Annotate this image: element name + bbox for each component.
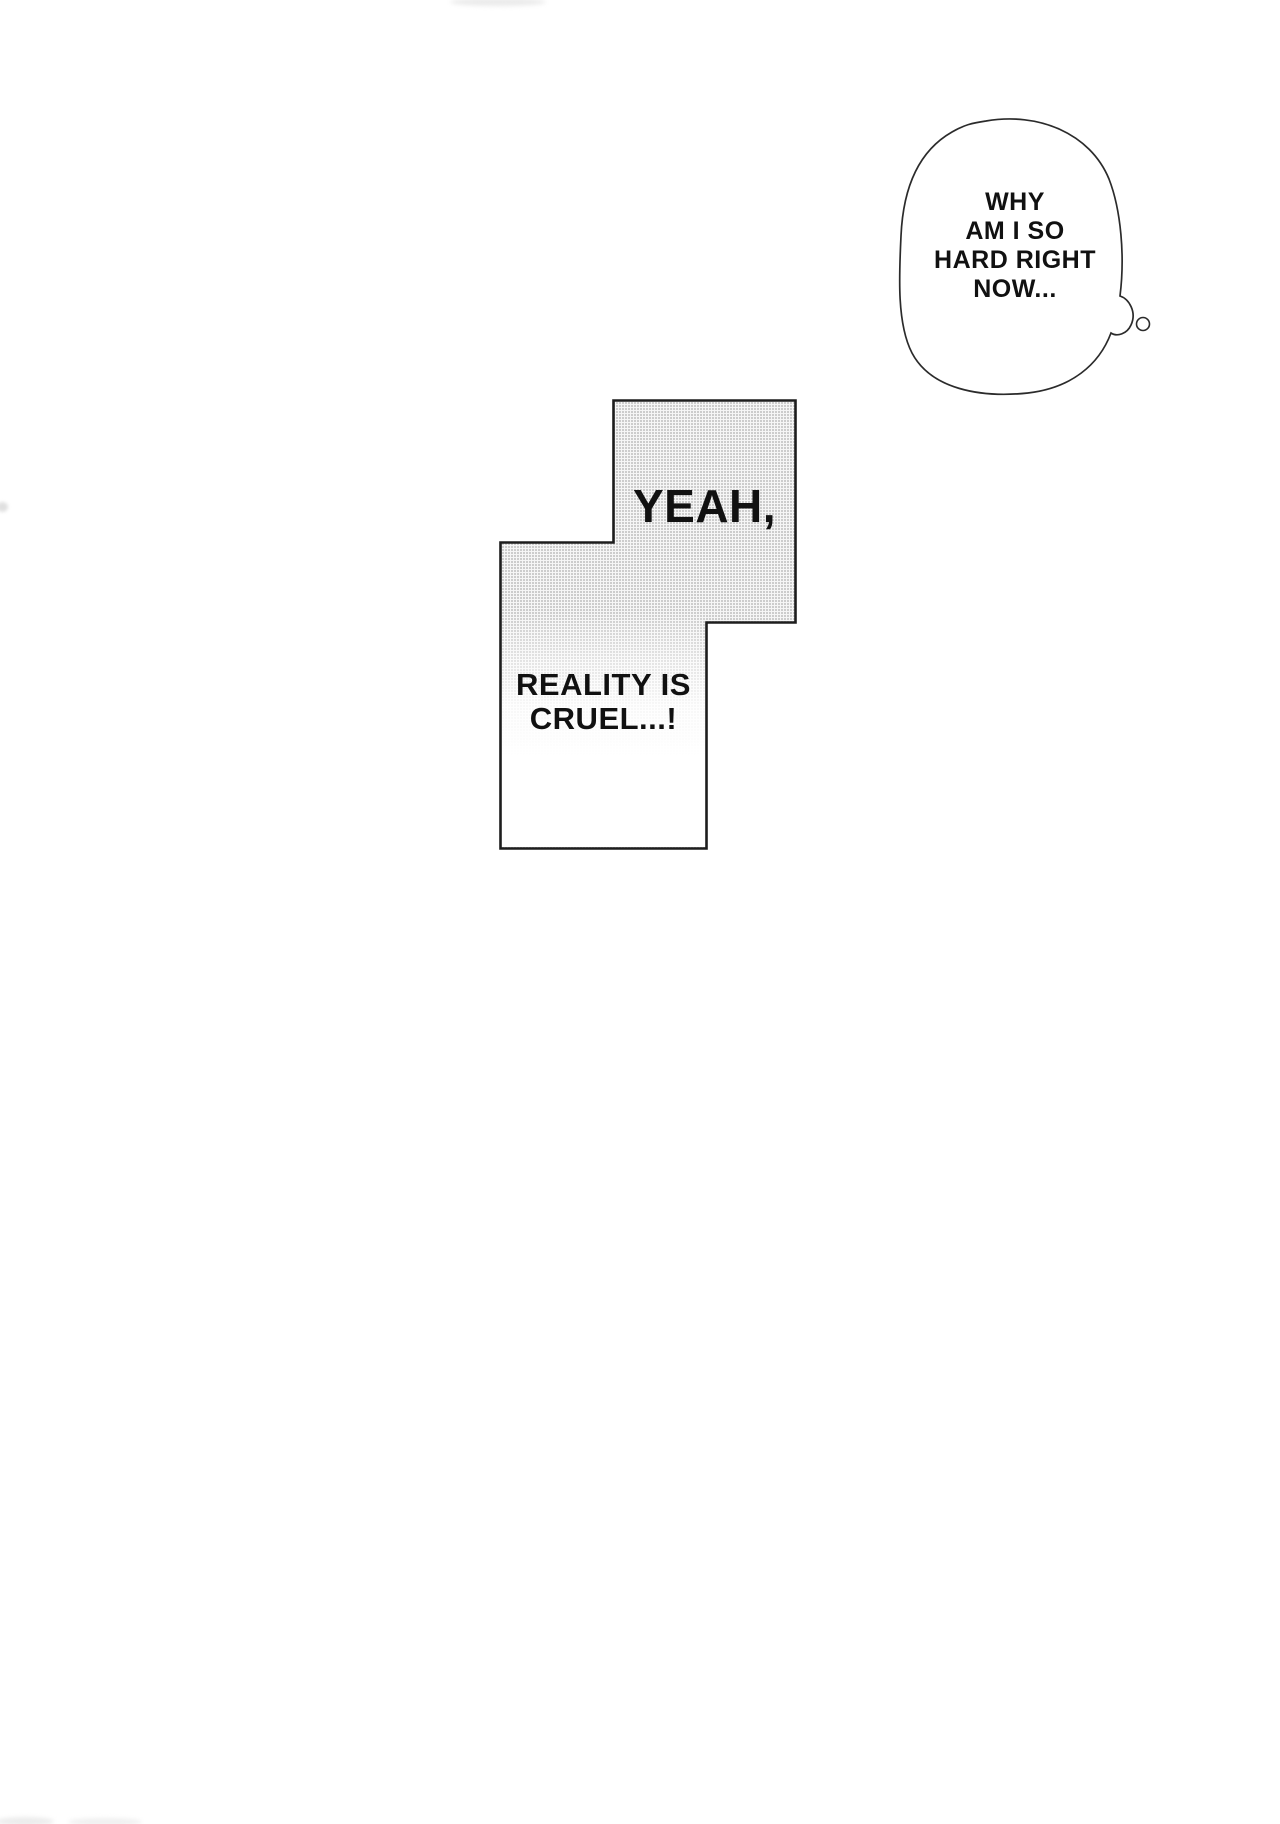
thought-line: AM I SO xyxy=(905,217,1125,246)
scan-smudge-top xyxy=(450,0,546,6)
thought-line: HARD RIGHT xyxy=(905,246,1125,275)
caption-line: CRUEL...! xyxy=(500,702,707,736)
scan-smudge-bottom xyxy=(0,1817,54,1824)
thought-bubble-text: WHY AM I SO HARD RIGHT NOW... xyxy=(905,188,1125,304)
thought-line: WHY xyxy=(905,188,1125,217)
caption-lower-text: REALITY IS CRUEL...! xyxy=(500,668,707,736)
caption-line: REALITY IS xyxy=(500,668,707,702)
caption-upper-text: YEAH, xyxy=(613,481,796,531)
manga-page: WHY AM I SO HARD RIGHT NOW... YEAH, REAL… xyxy=(0,0,1280,1824)
thought-dot xyxy=(1137,318,1150,331)
scan-smudge-left xyxy=(0,502,8,512)
scan-smudge-bottom xyxy=(68,1818,142,1824)
thought-line: NOW... xyxy=(905,275,1125,304)
